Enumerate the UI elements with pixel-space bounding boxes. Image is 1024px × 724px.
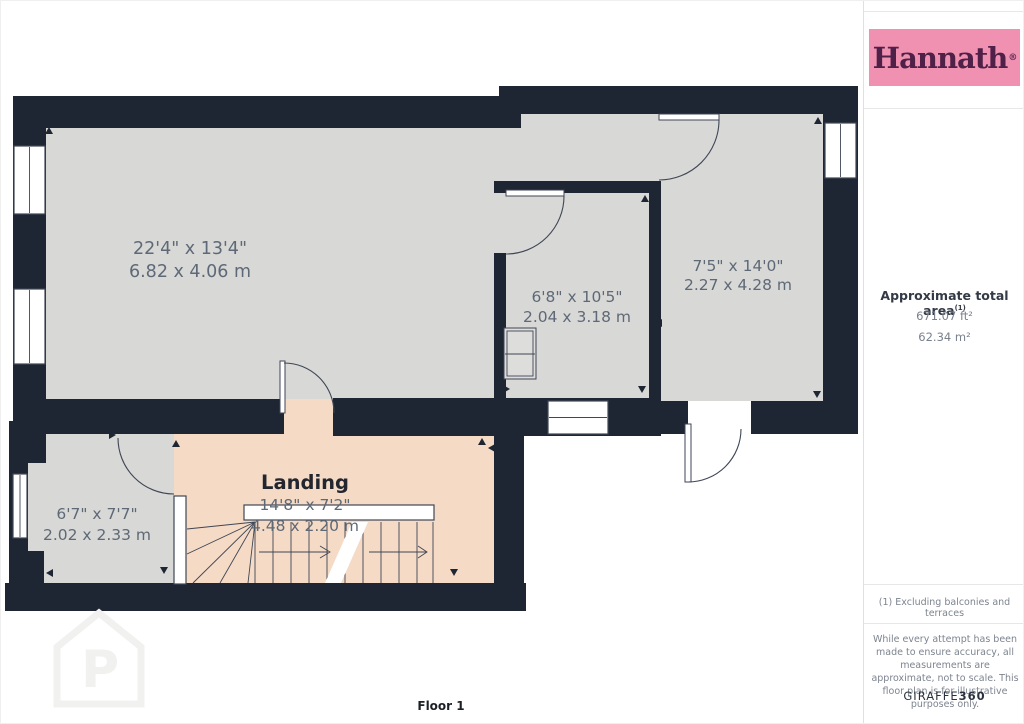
fixture-outline [504, 328, 536, 379]
room-dimensions-metric: 2.27 x 4.28 m [684, 276, 792, 294]
door-leaf [506, 190, 564, 196]
room-dimensions-imperial: 7'5" x 14'0" [692, 257, 783, 275]
door-swing-arc [688, 429, 741, 482]
info-sidebar: Hannath® Approximate total area(1) 671.0… [863, 1, 1024, 724]
divider [864, 11, 1024, 12]
room-dimensions-imperial: 22'4" x 13'4" [133, 239, 247, 259]
wall [13, 399, 284, 434]
living-room-fill [46, 128, 494, 399]
wall [494, 434, 524, 584]
giraffe360-brand-bold: 360 [959, 689, 986, 703]
area-footnote: (1) Excluding balconies and terraces [864, 597, 1024, 619]
agency-logo-text: Hannath [873, 41, 1008, 75]
divider [864, 623, 1024, 624]
wall [17, 551, 44, 583]
wall [499, 86, 858, 114]
door-leaf [685, 424, 691, 482]
room-dimensions-metric: 6.82 x 4.06 m [129, 262, 251, 282]
wall [5, 583, 526, 611]
room-dimensions-metric: 2.02 x 2.33 m [43, 526, 151, 544]
room-dimensions-imperial: 14'8" x 7'2" [259, 496, 350, 514]
room-dimensions-imperial: 6'8" x 10'5" [531, 288, 622, 306]
landing-doorway-fill [284, 399, 333, 434]
giraffe360-watermark-logo: P [57, 613, 141, 704]
wall [333, 398, 661, 436]
giraffe360-brand: GIRAFFE360 [864, 689, 1024, 703]
total-area-imperial: 671.07 ft² [864, 309, 1024, 323]
total-area-metric: 62.34 m² [864, 330, 1024, 344]
room-dimensions-imperial: 6'7" x 7'7" [56, 505, 137, 523]
room-dimensions-metric: 4.48 x 2.20 m [251, 517, 359, 535]
floor-label: Floor 1 [417, 699, 464, 713]
door-leaf [280, 361, 285, 413]
wall [649, 181, 661, 401]
room-name-landing: Landing [261, 471, 349, 494]
giraffe360-brand-regular: GIRAFFE [903, 689, 958, 703]
divider [864, 108, 1024, 109]
wall [13, 96, 521, 128]
wall [17, 399, 46, 463]
registered-mark: ® [1008, 53, 1016, 63]
watermark-letter-p: P [81, 640, 119, 700]
floor-plan-drawing: P 22'4" x 13'4" 6.82 x 4.06 m 6'8" x 10'… [1, 1, 863, 724]
wall [641, 401, 688, 434]
fixture [504, 328, 536, 379]
stair-railing [174, 496, 186, 584]
door-leaf [659, 114, 719, 120]
middle-room-doorway-fill [494, 193, 506, 253]
divider [864, 584, 1024, 585]
room-dimensions-metric: 2.04 x 3.18 m [523, 308, 631, 326]
floorplan-page: P 22'4" x 13'4" 6.82 x 4.06 m 6'8" x 10'… [0, 0, 1024, 724]
agency-logo: Hannath® [869, 29, 1020, 86]
